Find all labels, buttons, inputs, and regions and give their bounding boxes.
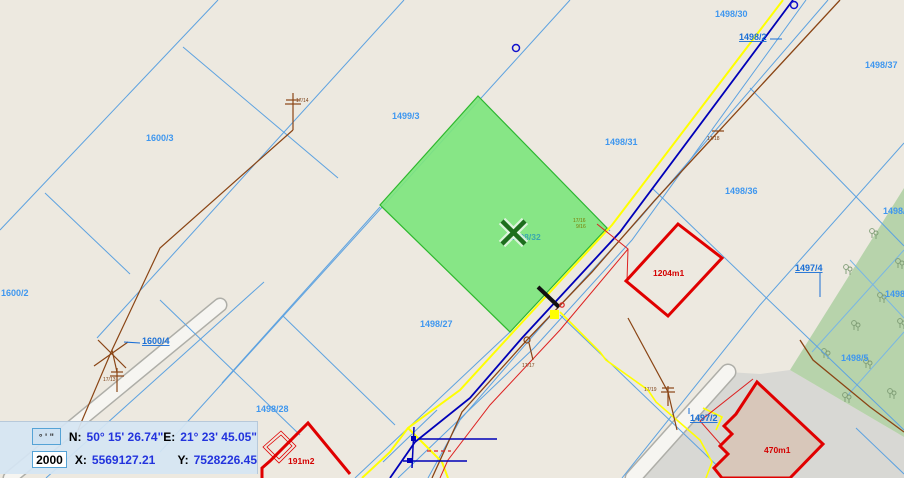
east-label: E: [163,430,175,444]
map-canvas[interactable]: 1600/3 1499/3 1498/30 1498/2 1498/37 149… [0,0,904,478]
parcel-label-link[interactable]: 1498/2 [739,32,767,42]
parcel-label: 1498/37 [865,60,898,70]
pole-label: 17/14 [296,98,309,104]
parcel-label: 1498/1 [885,289,904,299]
parcel-label-link[interactable]: 1497/4 [795,263,823,273]
east-value: 21° 23' 45.05" [180,430,257,444]
y-value: 7528226.45 [194,453,257,467]
building-area-label: 470m1 [764,445,791,455]
pole-label: 17/13 [103,377,116,383]
pole-label: 17/17 [522,363,535,369]
parcel-label: 1498/5 [841,353,869,363]
pole-label: 17/19 [644,387,657,393]
building-area-label: 191m2 [288,456,315,466]
building-area-label: 1204m1 [653,268,684,278]
parcel-label: 1498/31 [605,137,638,147]
status-bar: ° ' " N: 50° 15' 26.74" E: 21° 23' 45.05… [0,421,258,474]
north-label: N: [69,430,82,444]
parcel-label: 1499/3 [392,111,420,121]
gis-map-window: 1600/3 1499/3 1498/30 1498/2 1498/37 149… [0,0,904,478]
parcel-label: 1498/3 [883,206,904,216]
parcel-label-link[interactable]: 1497/2 [690,413,718,423]
parcel-label-link[interactable]: 1600/4 [142,336,170,346]
pole-label: 9/16 [576,224,586,230]
parcel-label: 1600/2 [1,288,29,298]
parcel-label: 1498/30 [715,9,748,19]
parcel-label: 1498/28 [256,404,289,414]
x-value: 5569127.21 [92,453,178,467]
dms-toggle-button[interactable]: ° ' " [32,428,61,445]
yellow-node-marker [550,310,559,319]
scale-input[interactable]: 2000 [32,451,67,468]
y-label: Y: [177,453,188,467]
parcel-label: 1600/3 [146,133,174,143]
pole-label: 17/18 [707,136,720,142]
x-label: X: [75,453,87,467]
north-value: 50° 15' 26.74" [87,430,164,444]
parcel-label: 1498/27 [420,319,453,329]
parcel-label: 1498/36 [725,186,758,196]
